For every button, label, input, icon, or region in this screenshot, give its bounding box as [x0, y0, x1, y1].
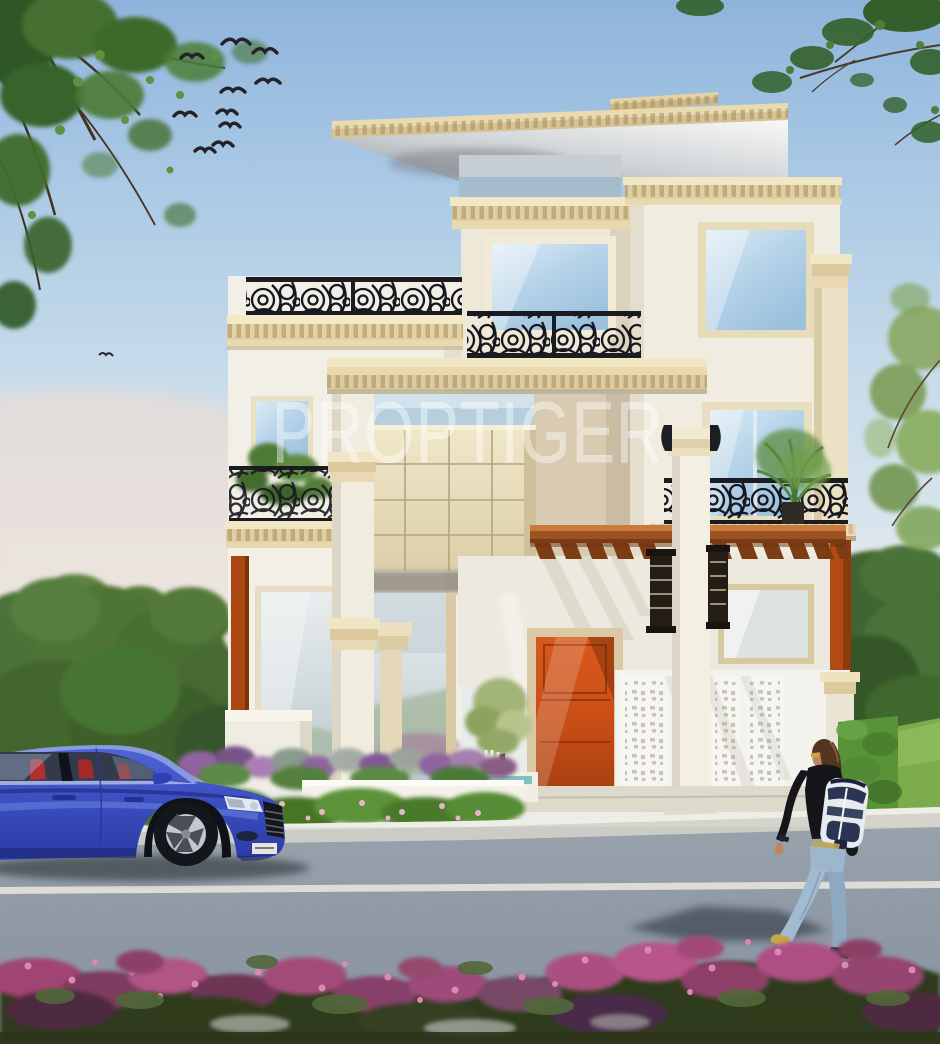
svg-text:PROPTIGER: PROPTIGER [272, 385, 664, 481]
